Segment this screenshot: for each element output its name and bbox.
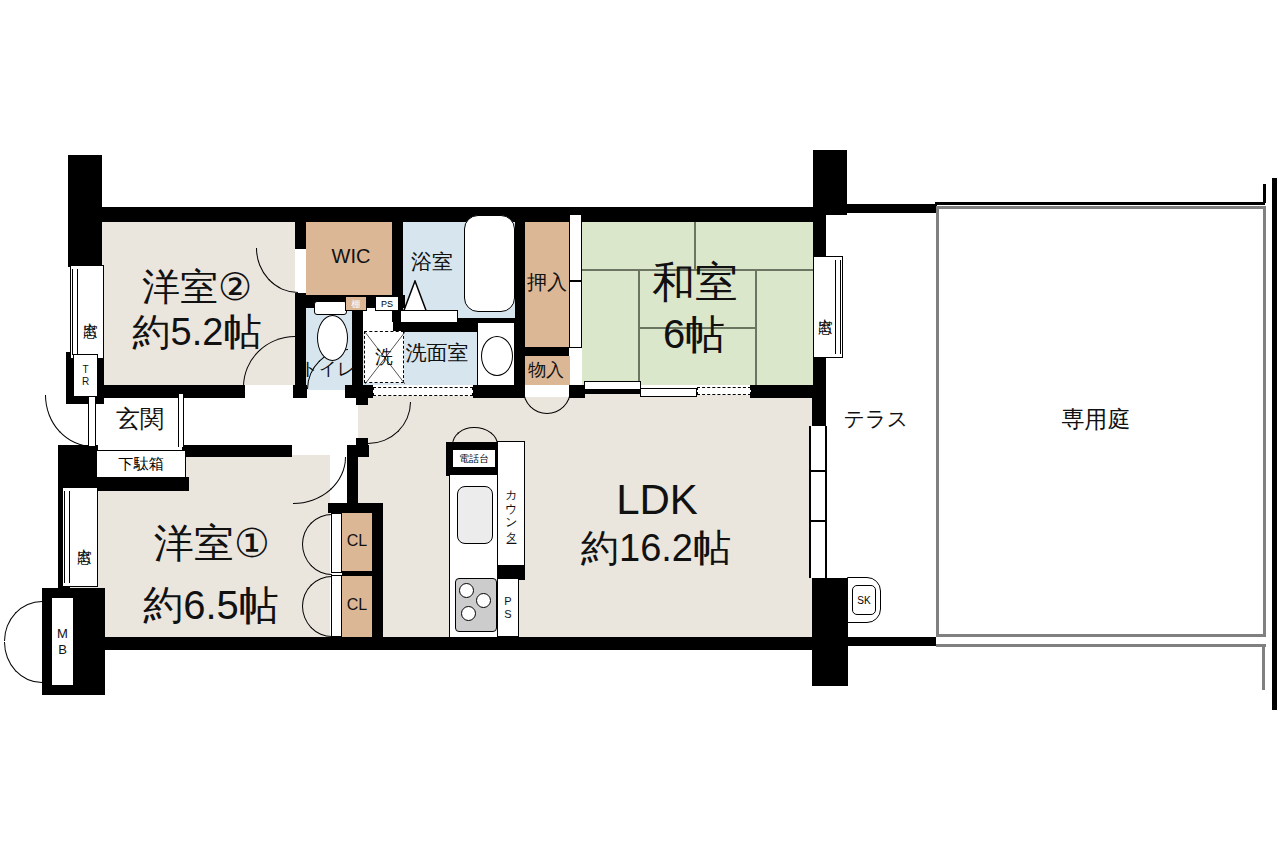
wall xyxy=(90,207,813,222)
washitsu-sliding-panel xyxy=(640,388,697,397)
wall xyxy=(473,385,525,398)
pipe-space-label: PS xyxy=(381,299,393,309)
counter-label: カウンター xyxy=(503,482,520,537)
window-glazing xyxy=(64,491,70,583)
getabako-box: 下駄箱 xyxy=(96,450,186,478)
cl-door-panel xyxy=(331,575,342,637)
washitsu-size: 6帖 xyxy=(663,311,725,357)
kitchen-sink xyxy=(457,486,493,544)
wall xyxy=(182,445,292,457)
wall xyxy=(90,385,245,398)
wall xyxy=(750,385,814,398)
slop-sink: SK xyxy=(852,585,876,615)
fence-line xyxy=(936,644,1266,647)
pipe-space-label: PS xyxy=(502,595,514,621)
bathroom-label: 浴室 xyxy=(411,250,453,274)
ldk-size: 約16.2帖 xyxy=(581,527,731,571)
wall xyxy=(813,354,826,394)
wall xyxy=(812,390,826,428)
meter-box: MB xyxy=(51,597,74,686)
floor-plan: 出窓 出窓 出窓 玄関 下駄箱 TR MB WIC 浴室 洗面室 洗 トイレ 棚 xyxy=(0,0,1280,850)
trunk-room-label: TR xyxy=(80,364,91,388)
counter-bar: カウンター xyxy=(497,441,525,578)
trunk-room-box: TR xyxy=(73,354,98,397)
terrace-label: テラス xyxy=(844,407,908,431)
wall xyxy=(848,637,936,646)
washitsu-sliding-door xyxy=(697,387,751,395)
stove-burner xyxy=(476,593,491,608)
bath-folding-door xyxy=(402,280,428,314)
wall xyxy=(356,392,368,405)
washbasin xyxy=(481,336,513,376)
stove-burner xyxy=(461,606,476,621)
wall xyxy=(515,207,525,388)
phone-stand-label: 電話台 xyxy=(459,452,489,466)
fusuma-handle-tick xyxy=(569,280,582,282)
cl-door-panel xyxy=(331,513,342,573)
mb-door-arc xyxy=(4,601,42,641)
washitsu-sliding-panel xyxy=(584,381,641,390)
yoshitsu2-name: 洋室② xyxy=(142,266,252,310)
wall xyxy=(525,347,569,356)
pipe-space-box: PS xyxy=(375,296,399,311)
genkan-label: 玄関 xyxy=(116,405,164,433)
pipe-space-kitchen: PS xyxy=(497,578,519,637)
bath-threshold xyxy=(400,310,458,323)
window-tick xyxy=(809,520,827,522)
yoshitsu1-door-arc xyxy=(293,457,346,504)
wic-label: WIC xyxy=(332,245,371,268)
wall xyxy=(813,215,826,258)
yoshitsu2-size: 約5.2帖 xyxy=(133,311,262,355)
toilet-bowl xyxy=(317,315,348,361)
toilet-label: トイレ xyxy=(300,359,355,380)
monoire-label: 物入 xyxy=(528,360,564,381)
wall xyxy=(68,155,102,267)
meter-box-label: MB xyxy=(55,626,70,658)
phone-stand-inner: 電話台 xyxy=(452,449,496,468)
stove-burner xyxy=(459,583,474,598)
fence-line xyxy=(1262,644,1265,690)
wall xyxy=(372,503,383,650)
window-glazing xyxy=(72,269,78,355)
slop-sink-label: SK xyxy=(857,595,870,606)
tatami-line xyxy=(755,269,757,385)
wall xyxy=(293,385,307,398)
cl2-label: CL xyxy=(347,596,367,614)
toilet-tank xyxy=(314,301,347,315)
wall xyxy=(92,477,189,491)
wall xyxy=(812,576,826,638)
wall xyxy=(569,385,585,398)
genkan-step-line xyxy=(178,394,184,447)
boundary-line xyxy=(935,202,1265,205)
getabako-label: 下駄箱 xyxy=(119,455,164,474)
boundary-line xyxy=(1263,184,1266,203)
mb-door-arc xyxy=(4,642,42,683)
yoshitsu1-name: 洋室① xyxy=(154,520,270,566)
washer-label: 洗 xyxy=(375,347,393,368)
washitsu-name: 和室 xyxy=(652,258,738,307)
ldk-terrace-window xyxy=(809,426,827,578)
garden-fence xyxy=(936,206,1266,637)
shelf-label: 棚 xyxy=(352,299,361,309)
wall xyxy=(352,296,363,398)
property-line xyxy=(1272,178,1277,710)
window-tick xyxy=(809,470,827,472)
washroom-label: 洗面室 xyxy=(406,341,469,365)
oshiire-label: 押入 xyxy=(527,271,567,294)
wall xyxy=(96,637,814,650)
washroom-sliding-door xyxy=(373,387,473,396)
window-glazing xyxy=(835,260,841,354)
ldk-name: LDK xyxy=(616,476,698,524)
yoshitsu1-size: 約6.5帖 xyxy=(143,582,279,628)
entry-door-leaf xyxy=(88,396,96,446)
wall xyxy=(347,455,358,507)
wall xyxy=(847,204,937,213)
bathtub xyxy=(464,215,515,312)
room-ldk-floor xyxy=(358,392,814,637)
wall xyxy=(813,150,847,215)
cl1-label: CL xyxy=(347,532,367,550)
entry-door-arc xyxy=(45,395,93,447)
